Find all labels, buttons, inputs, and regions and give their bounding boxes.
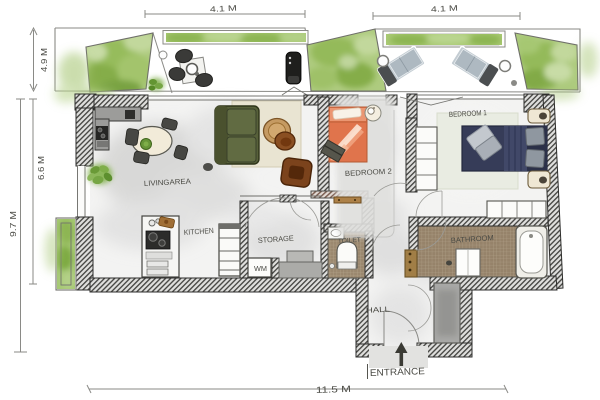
svg-text:WM: WM — [254, 264, 267, 273]
svg-text:4.9 M: 4.9 M — [40, 48, 49, 72]
svg-text:4.1 M: 4.1 M — [431, 4, 459, 14]
svg-text:TOILET: TOILET — [338, 237, 361, 245]
svg-text:HALL: HALL — [366, 305, 390, 315]
svg-text:9.7 M: 9.7 M — [9, 211, 18, 237]
svg-text:6.6 M: 6.6 M — [37, 156, 46, 180]
svg-text:11.5 M: 11.5 M — [316, 384, 351, 395]
svg-text:ENTRANCE: ENTRANCE — [370, 366, 425, 379]
svg-text:4.1 M: 4.1 M — [210, 4, 238, 14]
